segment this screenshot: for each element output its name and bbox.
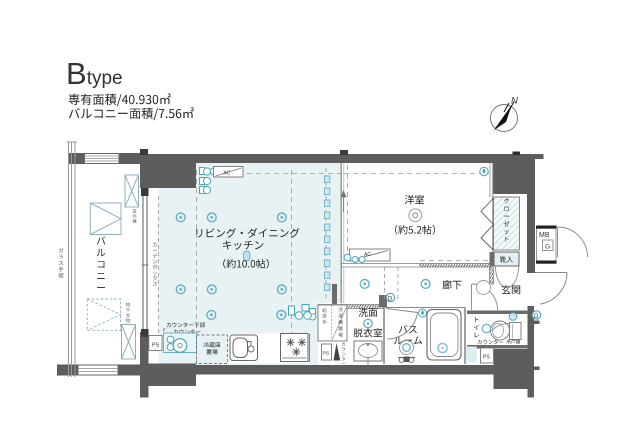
svg-text:AC: AC [224, 171, 231, 177]
svg-text:MB: MB [539, 232, 550, 239]
svg-text:PS: PS [152, 343, 160, 349]
svg-text:N: N [511, 96, 518, 107]
svg-text:PS: PS [483, 355, 490, 361]
svg-text:AC: AC [364, 252, 371, 258]
svg-text:G: G [545, 244, 550, 251]
svg-text:D: D [388, 297, 393, 303]
svg-text:PS: PS [323, 351, 329, 357]
svg-text:Btype: Btype [66, 56, 123, 91]
svg-text:D: D [534, 314, 539, 320]
